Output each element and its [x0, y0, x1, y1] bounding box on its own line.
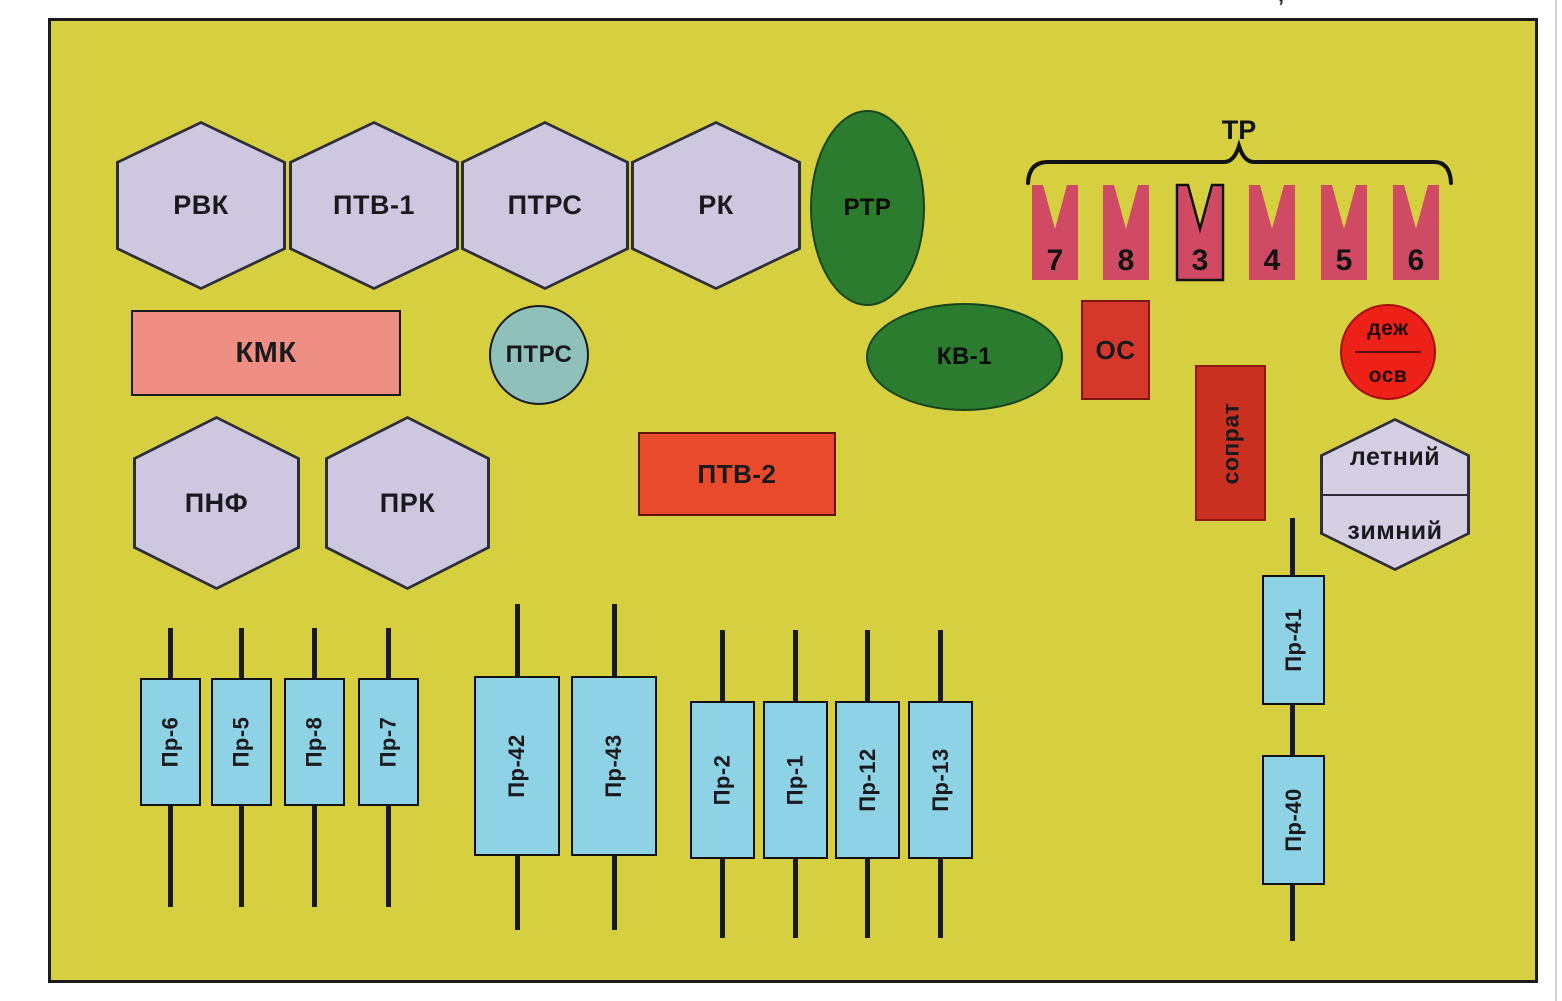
kmk-block: КМК — [131, 310, 401, 396]
soprat-block: сопрат — [1195, 365, 1266, 521]
fuse-pr-13: Пр-13 — [908, 701, 973, 859]
diagram-panel: РВК ПТВ-1 ПТРС РК КМК ПТРС РТР КВ-1 ОС — [48, 18, 1538, 983]
hexagon-rk: РК — [631, 121, 801, 290]
pennant-7-label: 7 — [1047, 244, 1064, 277]
fuse-pr-6-label: Пр-6 — [158, 717, 184, 768]
pennant-6-label: 6 — [1408, 244, 1425, 277]
hexagon-prk: ПРК — [325, 416, 490, 590]
summer-label: летний — [1350, 443, 1440, 472]
fuse-pr-5-label: Пр-5 — [229, 717, 255, 768]
fuse-pr-41-label: Пр-41 — [1281, 608, 1307, 672]
fuse-pr-2-label: Пр-2 — [710, 755, 736, 806]
fuse-pr-12-label: Пр-12 — [855, 748, 881, 812]
kmk-label: КМК — [235, 337, 296, 370]
tr-brace — [1028, 146, 1451, 183]
fuse-pr-13-label: Пр-13 — [928, 748, 954, 812]
hexagon-ptv1-label: ПТВ-1 — [333, 190, 415, 221]
kv1-label: КВ-1 — [937, 343, 992, 371]
os-block: ОС — [1081, 300, 1150, 400]
pennant-5-label: 5 — [1336, 244, 1353, 277]
kv1-ellipse: КВ-1 — [866, 303, 1063, 411]
hexagon-ptrs-label: ПТРС — [508, 190, 583, 221]
osv-label: осв — [1369, 364, 1408, 388]
dezh-label: деж — [1367, 317, 1408, 341]
fuse-pr-2: Пр-2 — [690, 701, 755, 859]
hexagon-prk-label: ПРК — [380, 488, 435, 519]
fuse-pr-40-label: Пр-40 — [1281, 788, 1307, 852]
fuse-pr-41: Пр-41 — [1262, 575, 1325, 705]
fuse-pr-12: Пр-12 — [835, 701, 900, 859]
ptrs-circle-label: ПТРС — [506, 341, 573, 369]
season-hexagon: летний зимний — [1320, 418, 1470, 571]
pennant-4-label: 4 — [1264, 244, 1281, 277]
ptv2-block: ПТВ-2 — [638, 432, 836, 516]
hexagon-pnf-label: ПНФ — [185, 488, 248, 519]
hexagon-rvk: РВК — [116, 121, 286, 290]
pennant-3-label: 3 — [1192, 244, 1209, 277]
dezh-osv-circle: деж осв — [1340, 304, 1436, 400]
hexagon-ptrs: ПТРС — [461, 121, 629, 290]
fuse-pr-7-label: Пр-7 — [376, 717, 402, 768]
rtr-ellipse: РТР — [810, 110, 925, 306]
os-label: ОС — [1096, 335, 1136, 366]
ptv2-label: ПТВ-2 — [698, 459, 777, 490]
fuse-pr-5: Пр-5 — [211, 678, 272, 806]
hexagon-ptv1: ПТВ-1 — [289, 121, 459, 290]
hexagon-rk-label: РК — [698, 190, 734, 221]
scanned-page: ’ РВК ПТВ-1 ПТРС РК КМК ПТРС РТР КВ-1 — [0, 0, 1562, 1001]
rtr-label: РТР — [844, 194, 892, 222]
fuse-pr-8-label: Пр-8 — [302, 717, 328, 768]
fuse-pr-1: Пр-1 — [763, 701, 828, 859]
hexagon-pnf: ПНФ — [133, 416, 300, 590]
soprat-label: сопрат — [1217, 402, 1244, 484]
fuse-pr-43-label: Пр-43 — [601, 734, 627, 798]
page-edge-shadow — [1555, 0, 1557, 1001]
fuse-pr-42: Пр-42 — [474, 676, 560, 856]
fuse-pr-7: Пр-7 — [358, 678, 419, 806]
fuse-pr-40: Пр-40 — [1262, 755, 1325, 885]
ptrs-circle: ПТРС — [489, 305, 589, 405]
pennant-8-label: 8 — [1118, 244, 1135, 277]
fuse-pr-1-label: Пр-1 — [783, 755, 809, 806]
fuse-pr-42-label: Пр-42 — [504, 734, 530, 798]
stray-mark: ’ — [1278, 0, 1284, 20]
fuse-pr-43: Пр-43 — [571, 676, 657, 856]
fuse-pr-8: Пр-8 — [284, 678, 345, 806]
tr-group: ТР 7 8 3 4 5 6 — [1018, 103, 1468, 303]
fuse-pr-6: Пр-6 — [140, 678, 201, 806]
winter-label: зимний — [1347, 517, 1442, 546]
hexagon-rvk-label: РВК — [173, 190, 229, 221]
